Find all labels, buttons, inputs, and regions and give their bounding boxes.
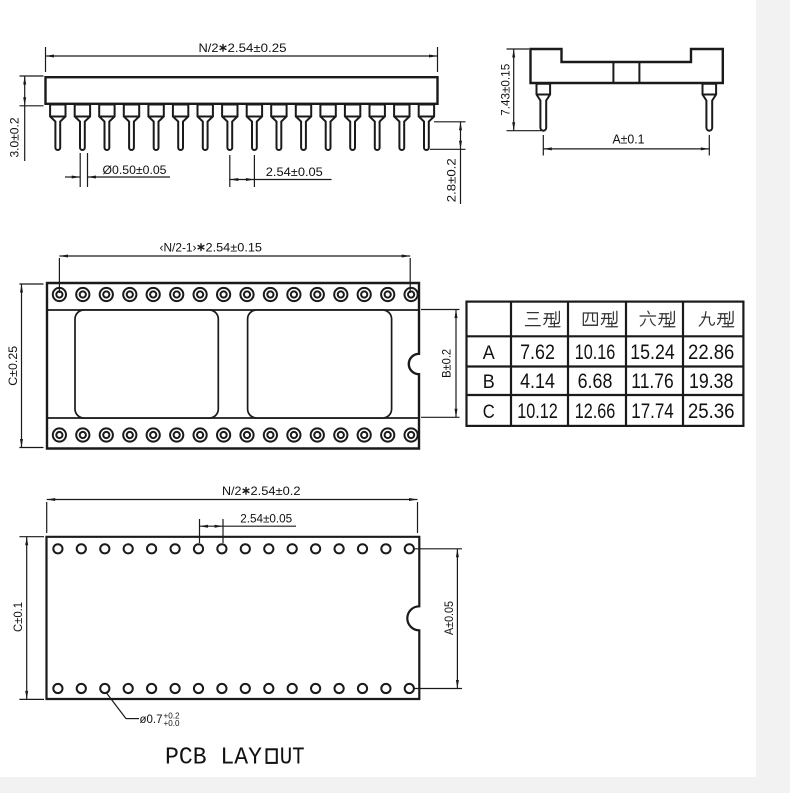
svg-text:N/2: N/2 [199,41,219,55]
svg-text:15.24: 15.24 [630,341,675,364]
svg-text:2.54±0.05: 2.54±0.05 [266,165,323,179]
svg-text:UT: UT [280,745,305,772]
svg-text:25.36: 25.36 [688,400,735,423]
svg-text:A: A [483,343,495,364]
svg-text:A±0.1: A±0.1 [613,132,645,147]
svg-text:Ø0.50±0.05: Ø0.50±0.05 [103,163,167,177]
svg-text:12.66: 12.66 [575,400,616,423]
svg-text:2.54±0.2: 2.54±0.2 [251,484,301,498]
svg-text:11.76: 11.76 [631,370,673,393]
svg-text:22.86: 22.86 [688,341,734,364]
svg-text:10.12: 10.12 [517,400,558,423]
svg-text:‹N/2-1›: ‹N/2-1› [160,241,197,255]
svg-text:2.54±0.25: 2.54±0.25 [228,41,287,55]
svg-text:3.0±0.2: 3.0±0.2 [8,117,22,157]
svg-text:2.54±0.05: 2.54±0.05 [240,512,292,526]
svg-text:ø0.7: ø0.7 [140,712,163,726]
svg-text:C±0.1: C±0.1 [11,602,25,632]
svg-text:+0.0: +0.0 [164,719,181,728]
svg-text:C: C [483,402,495,423]
svg-text:B±0.2: B±0.2 [440,349,454,378]
svg-text:7.62: 7.62 [520,341,555,364]
svg-text:10.16: 10.16 [575,341,616,364]
svg-text:7.43±0.15: 7.43±0.15 [499,63,513,115]
svg-text:2.8±0.2: 2.8±0.2 [444,158,458,202]
svg-text:2.54±0.15: 2.54±0.15 [206,241,263,255]
svg-text:6.68: 6.68 [578,370,613,393]
svg-text:B: B [483,372,495,393]
svg-text:17.74: 17.74 [631,400,674,423]
svg-text:N/2: N/2 [222,484,242,498]
svg-text:C±0.25: C±0.25 [6,345,20,385]
svg-text:4.14: 4.14 [520,370,555,393]
svg-text:19.38: 19.38 [689,370,733,393]
svg-text:A±0.05: A±0.05 [442,601,456,635]
svg-text:PCB LAY: PCB LAY [165,745,262,772]
